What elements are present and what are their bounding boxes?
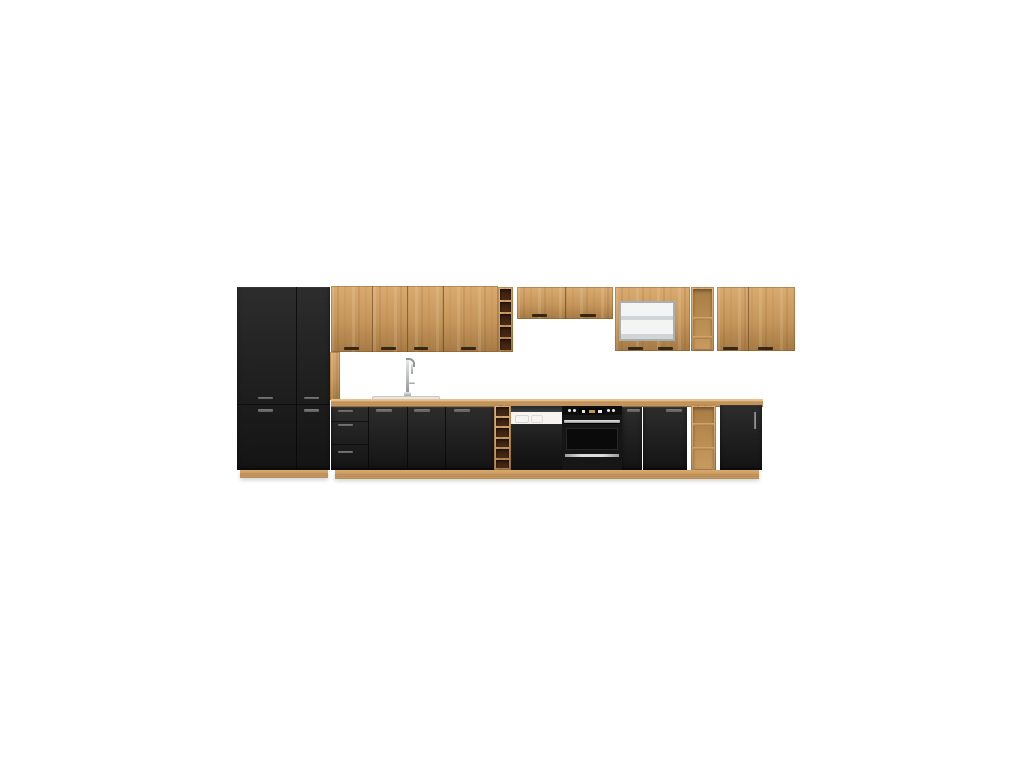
base-wine-rack-opening <box>496 407 509 416</box>
oven-knob-1 <box>568 409 571 412</box>
wall-run-left-seam-2 <box>407 286 408 352</box>
drawer-unit-right-seam <box>368 407 369 470</box>
glass-cabinet-bottom-band <box>621 334 673 339</box>
mixer-tap <box>400 358 418 398</box>
base-door3-handle <box>454 409 470 412</box>
base-wine-rack <box>494 405 511 470</box>
oven-control-panel <box>562 406 622 415</box>
upper-wine-rack-opening <box>500 327 511 338</box>
wall-cabinet-run-right <box>717 287 795 351</box>
upper-shelf-board-1 <box>693 317 712 320</box>
wall-short-door-seam <box>565 287 566 319</box>
base-door-wide-right <box>643 407 687 470</box>
upper-wine-rack-opening <box>500 302 511 313</box>
glass-door-panel <box>619 301 675 341</box>
wall-run-left-door3-handle <box>414 347 428 350</box>
drawer-seam-1 <box>331 421 368 422</box>
dishwasher-display <box>531 415 543 423</box>
base-shelf-niche <box>693 407 714 469</box>
oven-knob-2 <box>573 409 576 412</box>
base-wine-rack-opening <box>496 449 509 458</box>
drawer1-handle <box>338 410 353 412</box>
wall-run-left-seam-3 <box>443 286 444 352</box>
tall-cabinet-door-seam-horizontal <box>237 404 330 405</box>
base-cabinet-left-block <box>331 407 494 470</box>
sink-door-seam-1 <box>407 407 408 470</box>
tap-spray-head <box>411 364 413 374</box>
tap-lever <box>409 382 415 384</box>
upper-wine-rack-opening <box>500 314 511 325</box>
tap-column <box>406 360 409 393</box>
built-in-oven <box>562 406 622 470</box>
drawer2-handle <box>338 424 353 426</box>
base-end-cabinet-vertical-handle <box>754 412 756 429</box>
base-door4-handle <box>627 409 640 412</box>
tall-cabinet-door-seam-vertical <box>296 287 297 470</box>
wall-right-door2-handle <box>758 347 773 350</box>
base-door-right-of-oven <box>622 407 642 470</box>
dishwasher-control-panel <box>511 412 562 424</box>
dishwasher-handle-recess <box>515 415 529 423</box>
glass-cabinet-handle-left <box>628 347 643 350</box>
wall-short-door2-handle <box>580 314 596 317</box>
drawer3-handle <box>338 451 353 453</box>
drawer-seam-2 <box>331 444 368 445</box>
base-shelf-board-2 <box>693 447 714 450</box>
base-shelf-board-1 <box>693 423 714 426</box>
sink-door-seam-2 <box>445 407 446 470</box>
wall-glass-display-cabinet <box>615 287 690 351</box>
wall-right-door-seam <box>748 287 749 351</box>
upper-open-shelf-unit <box>691 287 714 351</box>
upper-shelf-board-2 <box>693 336 712 339</box>
base-wine-rack-opening <box>496 460 509 469</box>
tall-larder-cabinet <box>237 287 330 470</box>
oven-knob-3 <box>607 409 610 412</box>
oven-door-window <box>566 428 618 450</box>
base-open-shelf-unit <box>691 405 716 471</box>
wall-right-door1-handle <box>723 347 738 350</box>
kitchen-product-photo <box>0 0 1024 768</box>
base-door2-handle <box>414 409 430 412</box>
upper-wine-rack-opening <box>500 289 511 300</box>
wall-cabinet-short <box>517 287 613 319</box>
base-wine-rack-opening <box>496 418 509 427</box>
oven-display-segment-amber <box>589 410 595 413</box>
wall-cabinet-run-left <box>331 286 498 352</box>
base-wine-rack-opening <box>496 439 509 448</box>
base-wine-rack-opening <box>496 428 509 437</box>
oven-display-segment-left <box>582 410 585 413</box>
wall-run-left-door4-handle <box>461 347 476 350</box>
oven-handle-shadow <box>564 423 620 424</box>
tall-cabinet-upper-left-handle <box>258 397 273 399</box>
oven-glare-strip <box>565 454 619 457</box>
base-plinth <box>335 470 759 479</box>
wall-run-left-seam-1 <box>372 286 373 352</box>
base-door5-handle <box>666 409 682 412</box>
dishwasher-door <box>511 424 562 470</box>
glass-cabinet-handle-right <box>658 347 673 350</box>
upper-wine-rack-opening <box>500 339 511 350</box>
wall-short-door1-handle <box>532 314 547 317</box>
upper-wine-rack <box>498 287 513 352</box>
wall-run-left-door2-handle <box>381 347 396 350</box>
wall-run-left-door1-handle <box>344 347 359 350</box>
base-end-cabinet <box>720 405 762 470</box>
base-door1-handle <box>376 409 392 412</box>
tall-cabinet-lower-left-handle <box>258 409 273 412</box>
oven-display-segment-right <box>598 410 602 413</box>
dishwasher <box>511 406 562 470</box>
tall-cabinet-upper-right-handle <box>304 397 319 399</box>
side-filler-panel <box>330 352 340 400</box>
oven-knob-4 <box>612 409 615 412</box>
oven-display <box>579 408 605 414</box>
tall-cabinet-plinth <box>240 470 328 478</box>
tall-cabinet-lower-right-handle <box>304 409 319 412</box>
glass-cabinet-shelf <box>621 316 673 320</box>
